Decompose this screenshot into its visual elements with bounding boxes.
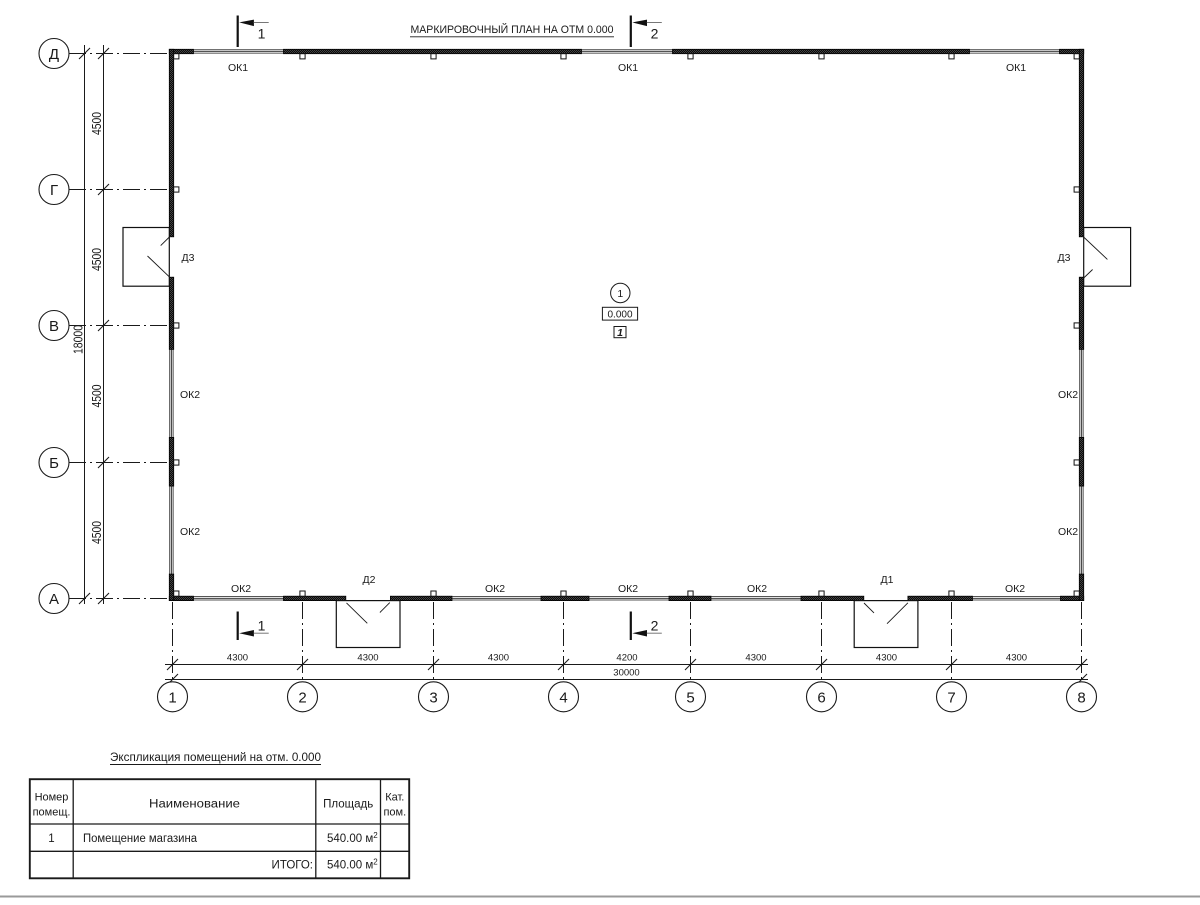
svg-text:А: А: [49, 591, 59, 608]
svg-text:ОК1: ОК1: [228, 62, 248, 74]
svg-text:18000: 18000: [72, 325, 86, 354]
svg-text:ОК2: ОК2: [1058, 389, 1078, 401]
svg-text:1: 1: [617, 288, 623, 300]
svg-text:4500: 4500: [90, 521, 104, 544]
svg-text:540.00 м2: 540.00 м2: [327, 831, 378, 845]
svg-text:1: 1: [617, 327, 623, 339]
svg-text:Д3: Д3: [182, 252, 195, 264]
svg-text:4300: 4300: [357, 652, 378, 663]
svg-text:ОК2: ОК2: [1058, 526, 1078, 538]
svg-text:Площадь: Площадь: [323, 799, 373, 811]
svg-text:5: 5: [686, 689, 694, 706]
svg-text:ОК2: ОК2: [485, 583, 505, 595]
svg-text:2: 2: [651, 26, 659, 42]
svg-text:помещ.: помещ.: [33, 807, 71, 819]
svg-text:1: 1: [168, 689, 176, 706]
svg-text:2: 2: [651, 618, 659, 634]
svg-text:4500: 4500: [90, 384, 104, 407]
svg-text:Кат.: Кат.: [385, 792, 404, 804]
svg-text:Д2: Д2: [363, 574, 376, 586]
svg-text:ОК2: ОК2: [618, 583, 638, 595]
svg-text:ОК2: ОК2: [747, 583, 767, 595]
svg-text:4200: 4200: [616, 652, 637, 663]
svg-text:4300: 4300: [227, 652, 248, 663]
svg-text:4300: 4300: [876, 652, 897, 663]
svg-text:ОК2: ОК2: [1005, 583, 1025, 595]
svg-text:1: 1: [258, 26, 266, 42]
svg-text:4500: 4500: [90, 248, 104, 271]
svg-text:540.00 м2: 540.00 м2: [327, 858, 378, 872]
svg-text:1: 1: [48, 833, 54, 845]
svg-text:Г: Г: [50, 182, 58, 199]
svg-text:Б: Б: [49, 455, 59, 472]
svg-text:МАРКИРОВОЧНЫЙ ПЛАН НА ОТМ 0.00: МАРКИРОВОЧНЫЙ ПЛАН НА ОТМ 0.000: [411, 23, 614, 36]
svg-text:4: 4: [559, 689, 567, 706]
svg-text:8: 8: [1077, 689, 1085, 706]
svg-text:ОК2: ОК2: [180, 389, 200, 401]
svg-text:ОК1: ОК1: [618, 62, 638, 74]
svg-text:30000: 30000: [613, 668, 639, 679]
svg-text:1: 1: [258, 618, 266, 634]
svg-text:4300: 4300: [745, 652, 766, 663]
svg-text:Помещение магазина: Помещение магазина: [83, 833, 198, 845]
svg-text:ОК2: ОК2: [231, 583, 251, 595]
svg-text:0.000: 0.000: [607, 310, 632, 321]
svg-text:Д: Д: [49, 46, 59, 63]
svg-text:2: 2: [298, 689, 306, 706]
svg-text:Номер: Номер: [35, 792, 69, 804]
svg-text:7: 7: [947, 689, 955, 706]
svg-text:Д1: Д1: [881, 574, 894, 586]
svg-text:Д3: Д3: [1058, 252, 1071, 264]
svg-text:ОК2: ОК2: [180, 526, 200, 538]
svg-text:4500: 4500: [90, 112, 104, 135]
svg-text:В: В: [49, 318, 59, 335]
svg-text:Экспликация помещений на отм.: Экспликация помещений на отм. 0.000: [110, 752, 321, 764]
svg-text:Наименование: Наименование: [149, 799, 240, 811]
svg-text:пом.: пом.: [383, 807, 406, 819]
svg-text:3: 3: [429, 689, 437, 706]
svg-text:ИТОГО:: ИТОГО:: [272, 860, 313, 872]
svg-text:ОК1: ОК1: [1006, 62, 1026, 74]
svg-text:4300: 4300: [1006, 652, 1027, 663]
svg-text:6: 6: [817, 689, 825, 706]
svg-text:4300: 4300: [488, 652, 509, 663]
